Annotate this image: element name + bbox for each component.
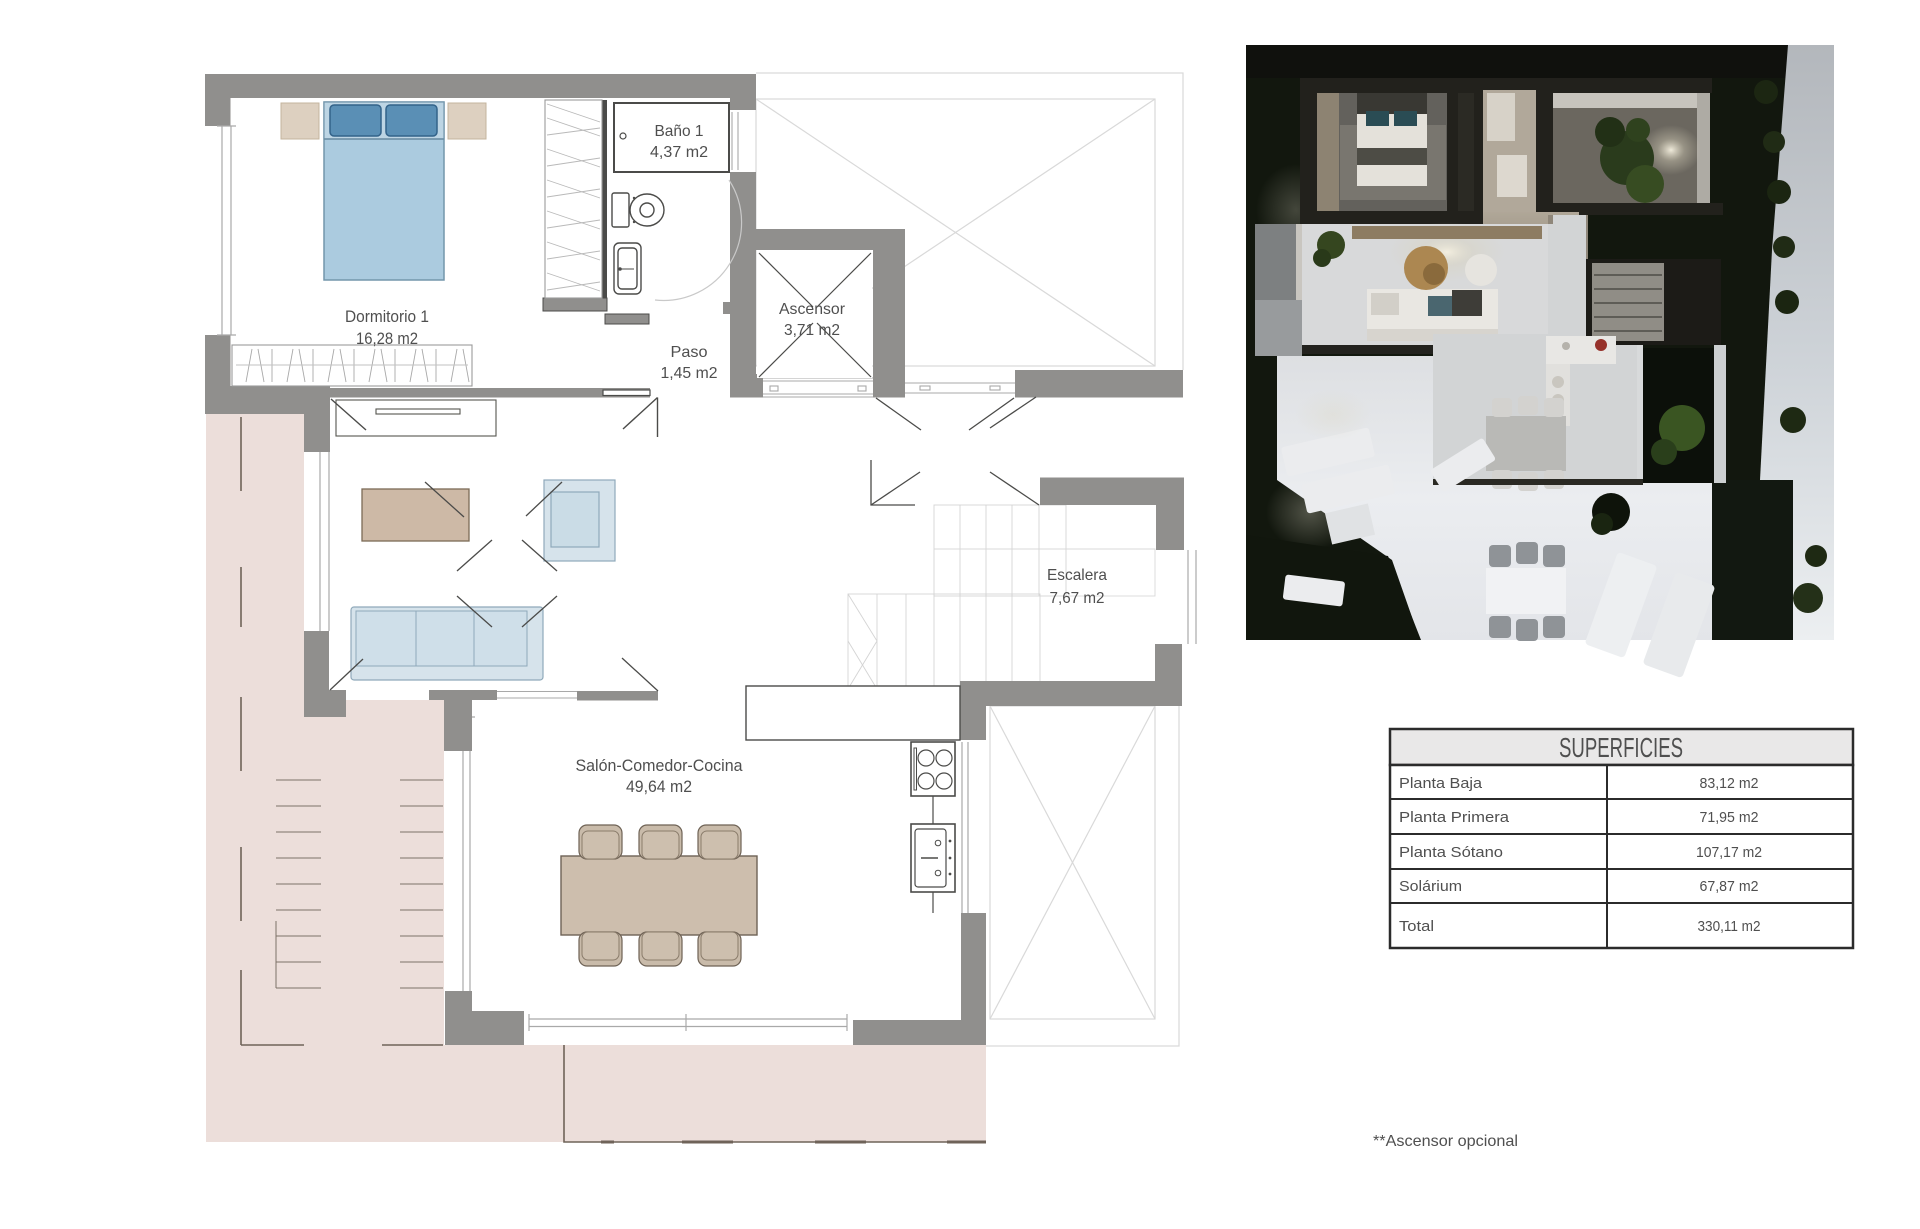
svg-text:49,64 m2: 49,64 m2 bbox=[626, 777, 692, 796]
svg-text:83,12 m2: 83,12 m2 bbox=[1700, 775, 1759, 792]
svg-text:107,17 m2: 107,17 m2 bbox=[1696, 844, 1762, 861]
svg-text:16,28 m2: 16,28 m2 bbox=[356, 329, 418, 348]
svg-text:Solárium: Solárium bbox=[1399, 878, 1462, 895]
svg-text:330,11 m2: 330,11 m2 bbox=[1698, 918, 1761, 935]
svg-text:SUPERFICIES: SUPERFICIES bbox=[1559, 732, 1683, 763]
svg-text:Dormitorio 1: Dormitorio 1 bbox=[345, 307, 429, 326]
svg-text:71,95 m2: 71,95 m2 bbox=[1700, 809, 1759, 826]
svg-text:Salón-Comedor-Cocina: Salón-Comedor-Cocina bbox=[576, 756, 744, 775]
svg-text:Planta Sótano: Planta Sótano bbox=[1399, 844, 1503, 861]
svg-text:Ascensor: Ascensor bbox=[779, 301, 846, 318]
svg-text:1,45 m2: 1,45 m2 bbox=[661, 365, 718, 382]
svg-text:Planta Baja: Planta Baja bbox=[1399, 775, 1483, 792]
svg-text:67,87 m2: 67,87 m2 bbox=[1700, 878, 1759, 895]
svg-text:**Ascensor opcional: **Ascensor opcional bbox=[1373, 1133, 1518, 1150]
svg-text:4,37 m2: 4,37 m2 bbox=[650, 144, 708, 161]
svg-text:Baño 1: Baño 1 bbox=[655, 123, 704, 140]
svg-text:Total: Total bbox=[1399, 918, 1434, 935]
svg-text:Escalera: Escalera bbox=[1047, 567, 1107, 584]
svg-text:7,67 m2: 7,67 m2 bbox=[1050, 590, 1105, 607]
svg-text:3,71 m2: 3,71 m2 bbox=[784, 322, 840, 339]
svg-text:Paso: Paso bbox=[671, 344, 708, 361]
svg-text:Planta Primera: Planta Primera bbox=[1399, 809, 1510, 826]
